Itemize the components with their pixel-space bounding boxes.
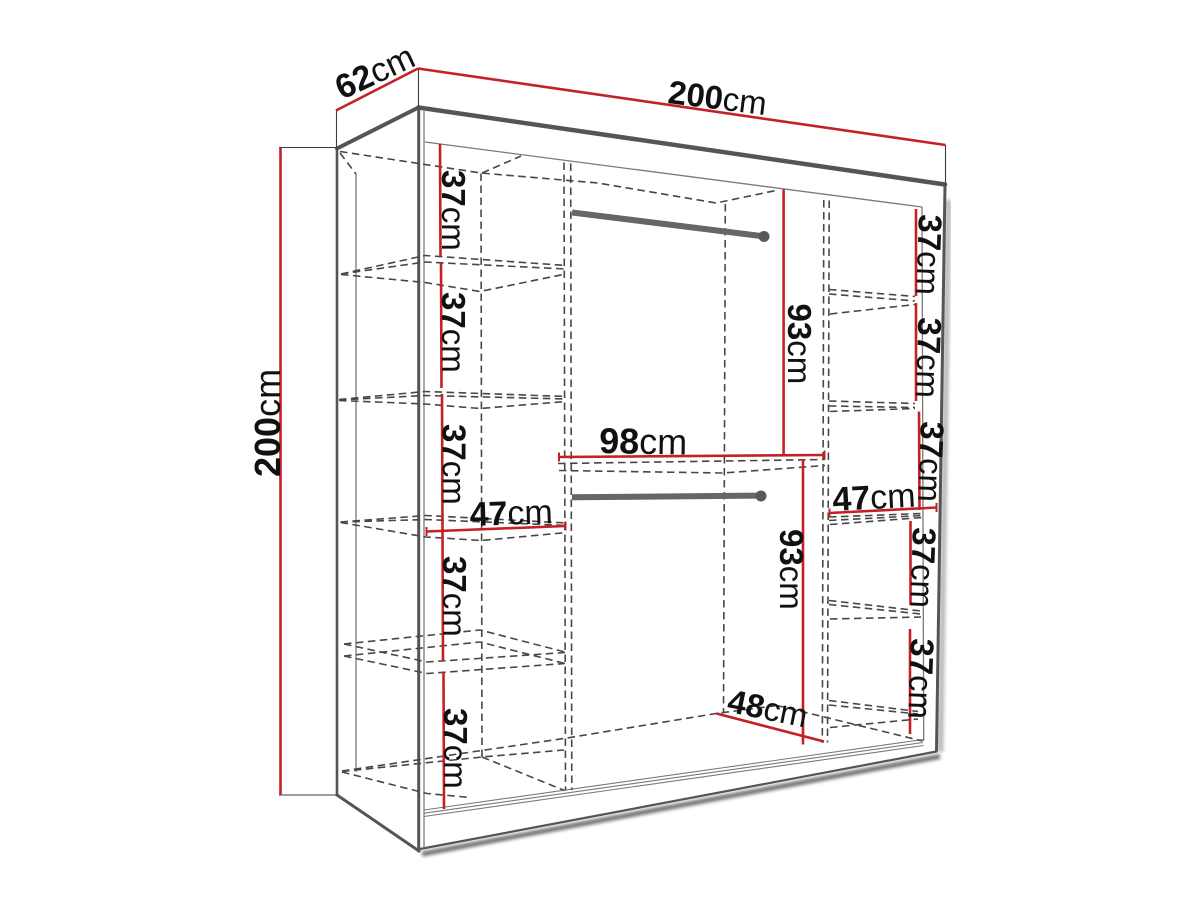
svg-text:37cm: 37cm [435, 170, 472, 251]
svg-text:37cm: 37cm [436, 424, 473, 505]
svg-text:37cm: 37cm [901, 638, 941, 720]
svg-text:37cm: 37cm [909, 214, 949, 296]
svg-text:93cm: 93cm [781, 304, 818, 385]
svg-text:47cm: 47cm [831, 477, 916, 519]
svg-text:47cm: 47cm [469, 493, 553, 534]
svg-text:37cm: 37cm [437, 708, 474, 789]
svg-text:37cm: 37cm [909, 317, 949, 399]
svg-text:98cm: 98cm [599, 420, 688, 463]
svg-text:93cm: 93cm [773, 529, 810, 610]
svg-text:200cm: 200cm [247, 369, 288, 477]
svg-text:37cm: 37cm [435, 292, 472, 373]
svg-text:37cm: 37cm [903, 527, 943, 609]
svg-text:37cm: 37cm [911, 421, 951, 503]
svg-text:37cm: 37cm [436, 556, 473, 637]
